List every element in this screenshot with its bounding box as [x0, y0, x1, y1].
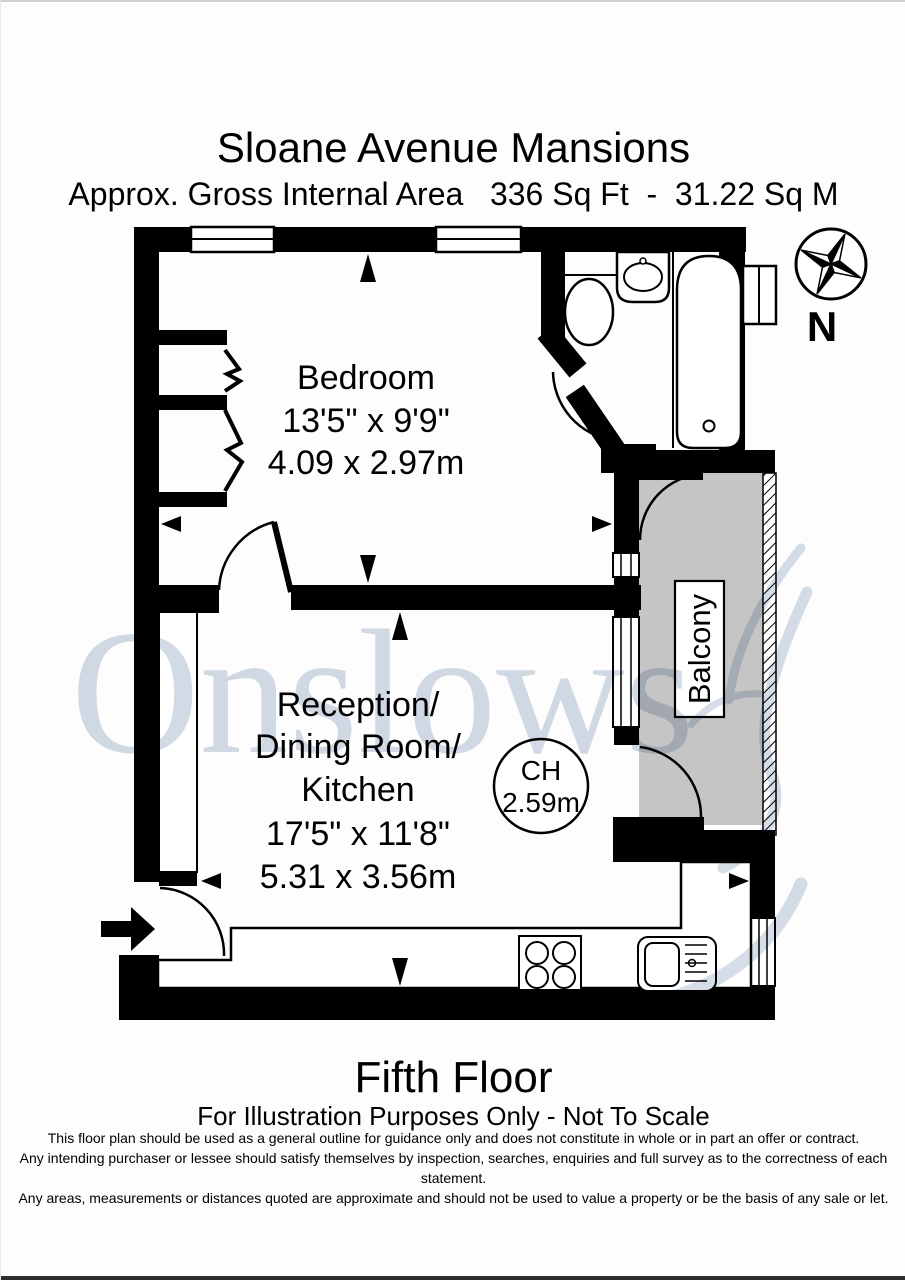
dimension-arrow-up: [360, 254, 376, 282]
bathtub: [677, 256, 741, 448]
bathtub-drain: [704, 421, 715, 432]
sink-basin: [645, 943, 679, 986]
dimension-arrow-left: [201, 873, 221, 889]
closet-bifold-door-bottom: [225, 410, 242, 491]
dimension-arrow-left: [161, 516, 181, 532]
balcony-bottom-door-leaf: [613, 817, 704, 830]
floorplan-page: Sloane Avenue Mansions Approx. Gross Int…: [0, 0, 905, 1280]
window-balcony-upper: [613, 553, 639, 577]
entrance-door-swing: [160, 888, 224, 956]
window-top-1: [191, 227, 274, 252]
basin-tap: [640, 258, 646, 264]
basin-bowl: [624, 263, 662, 291]
ceiling-height-value: 2.59m: [502, 787, 580, 818]
compass-rose-icon: N: [796, 229, 866, 350]
closet-bifold-door-top: [225, 350, 240, 391]
disclaimer-line: Any areas, measurements or distances quo…: [1, 1188, 905, 1208]
wall-bathroom-diagonal: [581, 400, 611, 444]
closet-wall-top: [159, 330, 227, 345]
disclaimer-line: This floor plan should be used as a gene…: [1, 1128, 905, 1148]
window-bathroom: [743, 266, 776, 324]
disclaimer: This floor plan should be used as a gene…: [1, 1128, 905, 1208]
toilet: [565, 279, 613, 345]
bedroom-size-metric: 4.09 x 2.97m: [268, 444, 465, 482]
compass-north-label: N: [807, 303, 837, 350]
dimension-arrow-down: [360, 555, 376, 583]
page-bottom-edge: [1, 1276, 905, 1280]
reception-size-metric: 5.31 x 3.56m: [260, 858, 457, 896]
watermark-text: Onslows: [71, 593, 694, 791]
wall-divider-foot: [553, 340, 571, 362]
bedroom-size-imperial: 13'5" x 9'9": [282, 402, 450, 440]
window-top-2: [436, 227, 521, 252]
bedroom-door: [219, 522, 291, 592]
dimension-arrow-right: [592, 516, 612, 532]
entrance-arrow-icon: [101, 907, 155, 951]
closet-wall-mid: [159, 395, 227, 410]
closet-wall-bottom: [159, 492, 227, 507]
floor-label: Fifth Floor: [1, 1053, 905, 1103]
reception-size-imperial: 17'5" x 11'8": [266, 815, 450, 853]
bedroom-label: Bedroom: [297, 359, 435, 397]
wall-balcony-col-top: [614, 472, 639, 553]
disclaimer-line: Any intending purchaser or lessee should…: [1, 1148, 905, 1188]
